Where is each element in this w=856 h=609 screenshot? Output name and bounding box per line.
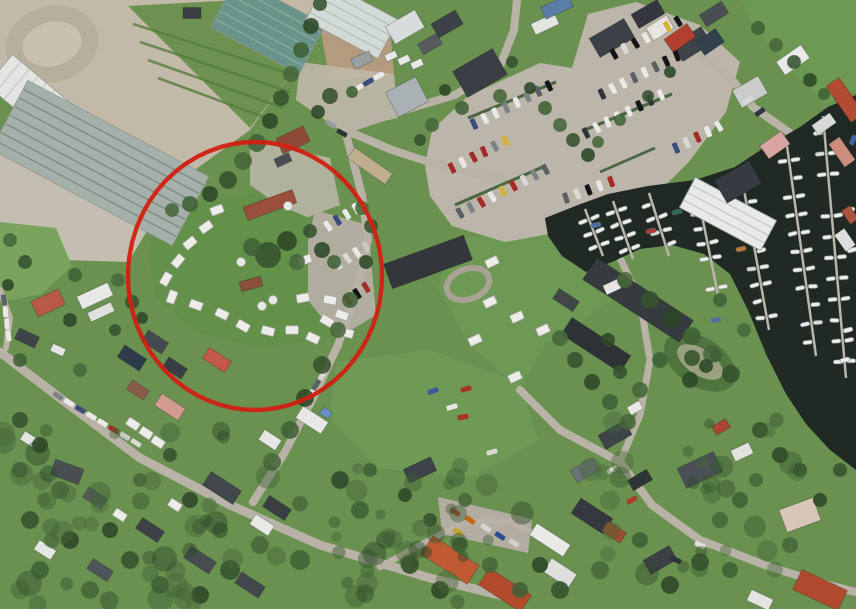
tree xyxy=(314,242,330,258)
tree xyxy=(601,333,615,347)
boat xyxy=(830,171,840,175)
tree xyxy=(414,134,426,146)
tree xyxy=(202,186,218,202)
tree xyxy=(663,309,681,327)
tree xyxy=(592,136,604,148)
tree xyxy=(532,557,548,573)
tree-canopy xyxy=(192,519,207,534)
aerial-photo xyxy=(0,0,856,609)
tree xyxy=(664,66,676,78)
tree xyxy=(322,88,338,104)
tree-canopy xyxy=(769,413,784,428)
boat xyxy=(696,242,706,247)
tree xyxy=(3,233,17,247)
tree xyxy=(712,512,728,528)
tent xyxy=(258,302,267,311)
tree-canopy xyxy=(132,492,149,509)
tree xyxy=(363,463,377,477)
tree xyxy=(551,581,569,599)
tree-canopy xyxy=(38,492,56,510)
tree xyxy=(722,365,740,383)
tree xyxy=(632,532,648,548)
tree-canopy xyxy=(25,441,50,466)
tree xyxy=(182,492,198,508)
boat xyxy=(831,339,841,344)
tree-canopy xyxy=(579,458,602,481)
tree-canopy xyxy=(683,446,694,457)
tree-canopy xyxy=(703,485,722,504)
car xyxy=(4,318,10,329)
tree-canopy xyxy=(476,474,498,496)
tree-canopy xyxy=(332,545,346,559)
tree xyxy=(642,90,654,102)
boat xyxy=(811,302,821,307)
tree xyxy=(567,352,583,368)
tree-canopy xyxy=(610,467,631,488)
tree xyxy=(311,105,325,119)
tree-canopy xyxy=(360,564,374,578)
tree-canopy xyxy=(436,570,459,593)
tree-canopy xyxy=(201,497,217,513)
boat xyxy=(837,254,847,259)
tree xyxy=(277,231,297,251)
boat xyxy=(755,316,765,321)
tree-canopy xyxy=(205,511,228,534)
tree xyxy=(699,359,713,373)
tree-canopy xyxy=(404,474,422,492)
tree xyxy=(455,101,469,115)
tree xyxy=(684,350,700,366)
tree-canopy xyxy=(511,502,534,525)
tree-canopy xyxy=(412,520,429,537)
tree xyxy=(782,537,798,553)
caravan xyxy=(296,293,310,304)
tree xyxy=(683,327,701,345)
boat xyxy=(817,172,827,177)
tree-canopy xyxy=(400,554,419,573)
tree xyxy=(732,492,748,508)
tree xyxy=(713,293,727,307)
tree-canopy xyxy=(10,463,33,486)
tree xyxy=(710,350,722,362)
tree xyxy=(818,88,830,100)
tree xyxy=(303,224,317,238)
car xyxy=(3,306,9,317)
tree xyxy=(293,42,309,58)
tree xyxy=(13,353,27,367)
caravan xyxy=(323,295,337,306)
tree xyxy=(661,576,679,594)
tent xyxy=(269,296,278,305)
tree xyxy=(273,90,289,106)
tree xyxy=(493,89,507,103)
tree-canopy xyxy=(720,545,732,557)
tree xyxy=(584,374,600,390)
tree xyxy=(769,38,783,52)
tree-canopy xyxy=(40,424,53,437)
tree xyxy=(581,148,595,162)
boat xyxy=(820,214,830,218)
tree-canopy xyxy=(445,503,456,514)
tree-canopy xyxy=(744,516,766,538)
tree xyxy=(506,56,518,68)
boat xyxy=(712,254,722,259)
tree-canopy xyxy=(152,546,177,571)
tree-canopy xyxy=(143,472,161,490)
boat xyxy=(830,318,840,322)
boat xyxy=(815,151,825,156)
tree-canopy xyxy=(635,562,658,585)
tree xyxy=(330,322,346,338)
tree xyxy=(552,330,568,346)
tree xyxy=(425,118,439,132)
tree xyxy=(602,394,618,410)
tree-canopy xyxy=(691,560,708,577)
tree xyxy=(2,279,14,291)
tree-canopy xyxy=(450,533,467,550)
tree xyxy=(538,101,552,115)
tree xyxy=(524,82,536,94)
tree xyxy=(641,291,659,309)
tree xyxy=(737,323,751,337)
tree xyxy=(290,550,310,570)
tree-canopy xyxy=(356,585,374,603)
tree-canopy xyxy=(256,465,280,489)
tree xyxy=(632,382,648,398)
tree-canopy xyxy=(443,478,455,490)
tree xyxy=(121,551,139,569)
tree-canopy xyxy=(42,518,60,536)
tree xyxy=(813,493,827,507)
tree xyxy=(243,238,261,256)
tree xyxy=(18,255,32,269)
tree xyxy=(163,448,177,462)
tree xyxy=(566,133,580,147)
tree xyxy=(111,273,125,287)
tree-canopy xyxy=(292,496,308,512)
boat xyxy=(822,235,832,240)
tree xyxy=(803,73,817,87)
tree xyxy=(234,152,252,170)
boat xyxy=(828,297,838,302)
tree xyxy=(751,21,765,35)
tree-canopy xyxy=(375,509,386,520)
tree-canopy xyxy=(779,451,802,474)
tree xyxy=(73,363,87,377)
tree xyxy=(102,522,118,538)
tree xyxy=(722,562,738,578)
tree xyxy=(303,18,319,34)
tree-canopy xyxy=(346,480,367,501)
tree xyxy=(283,66,299,82)
tree-canopy xyxy=(40,465,57,482)
tree xyxy=(749,473,763,487)
boat xyxy=(793,268,803,273)
tree-canopy xyxy=(16,570,42,596)
tree-canopy xyxy=(602,521,620,539)
boat xyxy=(808,284,818,288)
tree xyxy=(482,557,498,573)
tree xyxy=(787,55,801,69)
tent xyxy=(237,258,246,267)
tree xyxy=(342,292,358,308)
tree-canopy xyxy=(450,595,464,609)
tree-canopy xyxy=(483,535,494,546)
tree xyxy=(591,561,609,579)
tree xyxy=(351,501,369,519)
tree xyxy=(81,581,99,599)
tree xyxy=(68,268,82,282)
tree-canopy xyxy=(84,517,99,532)
building xyxy=(183,8,201,19)
tree-canopy xyxy=(88,482,111,505)
tree-canopy xyxy=(600,546,616,562)
tree xyxy=(613,365,627,379)
tree-canopy xyxy=(331,532,341,542)
tree-canopy xyxy=(352,463,363,474)
tree-canopy xyxy=(383,528,395,540)
caravan xyxy=(286,326,299,335)
tree-canopy xyxy=(603,411,625,433)
tree xyxy=(359,255,373,269)
tree-canopy xyxy=(363,542,387,566)
tree xyxy=(289,254,305,270)
tree-canopy xyxy=(182,543,197,558)
tree-canopy xyxy=(767,562,783,578)
boat xyxy=(783,195,793,200)
tree xyxy=(439,84,451,96)
tree-canopy xyxy=(695,546,707,558)
tree xyxy=(614,114,626,126)
tree-canopy xyxy=(457,551,468,562)
aerial-photo-canvas xyxy=(0,0,856,609)
tree xyxy=(262,113,278,129)
tree-canopy xyxy=(109,428,120,439)
tree xyxy=(281,421,299,439)
tree xyxy=(313,356,331,374)
tree xyxy=(109,324,121,336)
boat xyxy=(824,256,834,260)
tree xyxy=(458,493,472,507)
tree-canopy xyxy=(600,491,620,511)
tree-canopy xyxy=(711,455,733,477)
tree xyxy=(165,203,179,217)
tree-canopy xyxy=(687,476,700,489)
tree-canopy xyxy=(59,484,77,502)
boat xyxy=(803,340,813,345)
tree xyxy=(331,471,349,489)
tree xyxy=(21,511,39,529)
boat xyxy=(747,267,757,272)
tree xyxy=(617,272,633,288)
tree xyxy=(833,463,847,477)
tree-canopy xyxy=(222,549,243,570)
tree-canopy xyxy=(60,577,73,590)
tree xyxy=(512,582,528,598)
tree-canopy xyxy=(427,525,446,544)
tree-canopy xyxy=(452,458,468,474)
tree-canopy xyxy=(696,456,709,469)
tent xyxy=(284,202,293,211)
boat xyxy=(693,227,703,232)
tree xyxy=(219,171,237,189)
tree xyxy=(346,86,358,98)
tree xyxy=(652,352,668,368)
tree xyxy=(251,536,269,554)
boat xyxy=(839,275,849,280)
tree-canopy xyxy=(212,422,230,440)
tree-canopy xyxy=(160,423,180,443)
boat xyxy=(813,320,823,325)
tree xyxy=(553,118,567,132)
tree xyxy=(12,412,28,428)
tree-canopy xyxy=(329,516,341,528)
tree xyxy=(682,372,698,388)
tree xyxy=(63,313,77,327)
tree-canopy xyxy=(704,418,714,428)
tree-canopy xyxy=(677,561,689,573)
tree-canopy xyxy=(757,540,778,561)
tree xyxy=(327,255,341,269)
tree xyxy=(182,196,198,212)
tree-canopy xyxy=(267,547,286,566)
boat xyxy=(790,250,800,254)
